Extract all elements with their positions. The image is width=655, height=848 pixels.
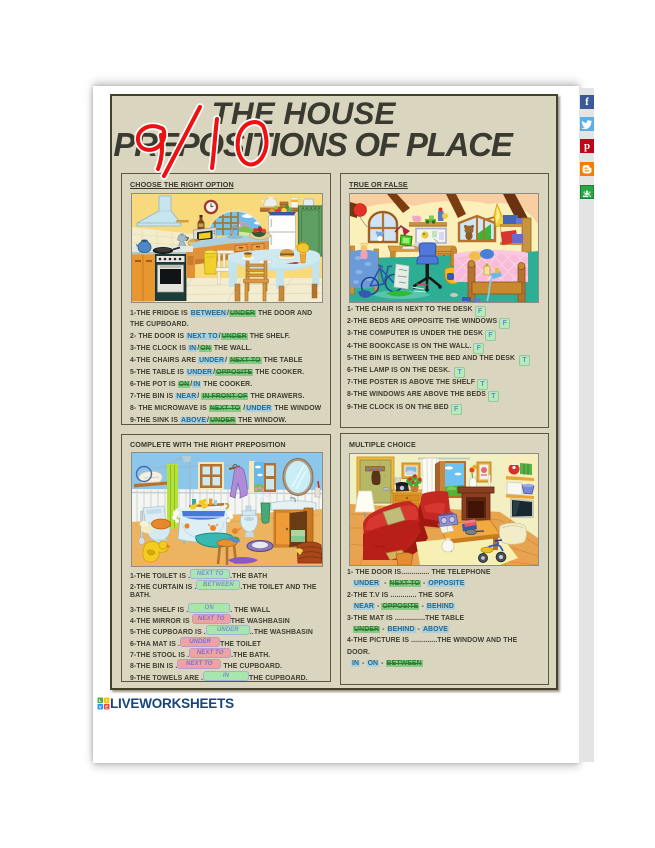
svg-text:L: L — [99, 698, 102, 703]
svg-text:I: I — [106, 698, 107, 703]
svg-text:E: E — [105, 704, 108, 709]
svg-text:V: V — [99, 704, 102, 709]
